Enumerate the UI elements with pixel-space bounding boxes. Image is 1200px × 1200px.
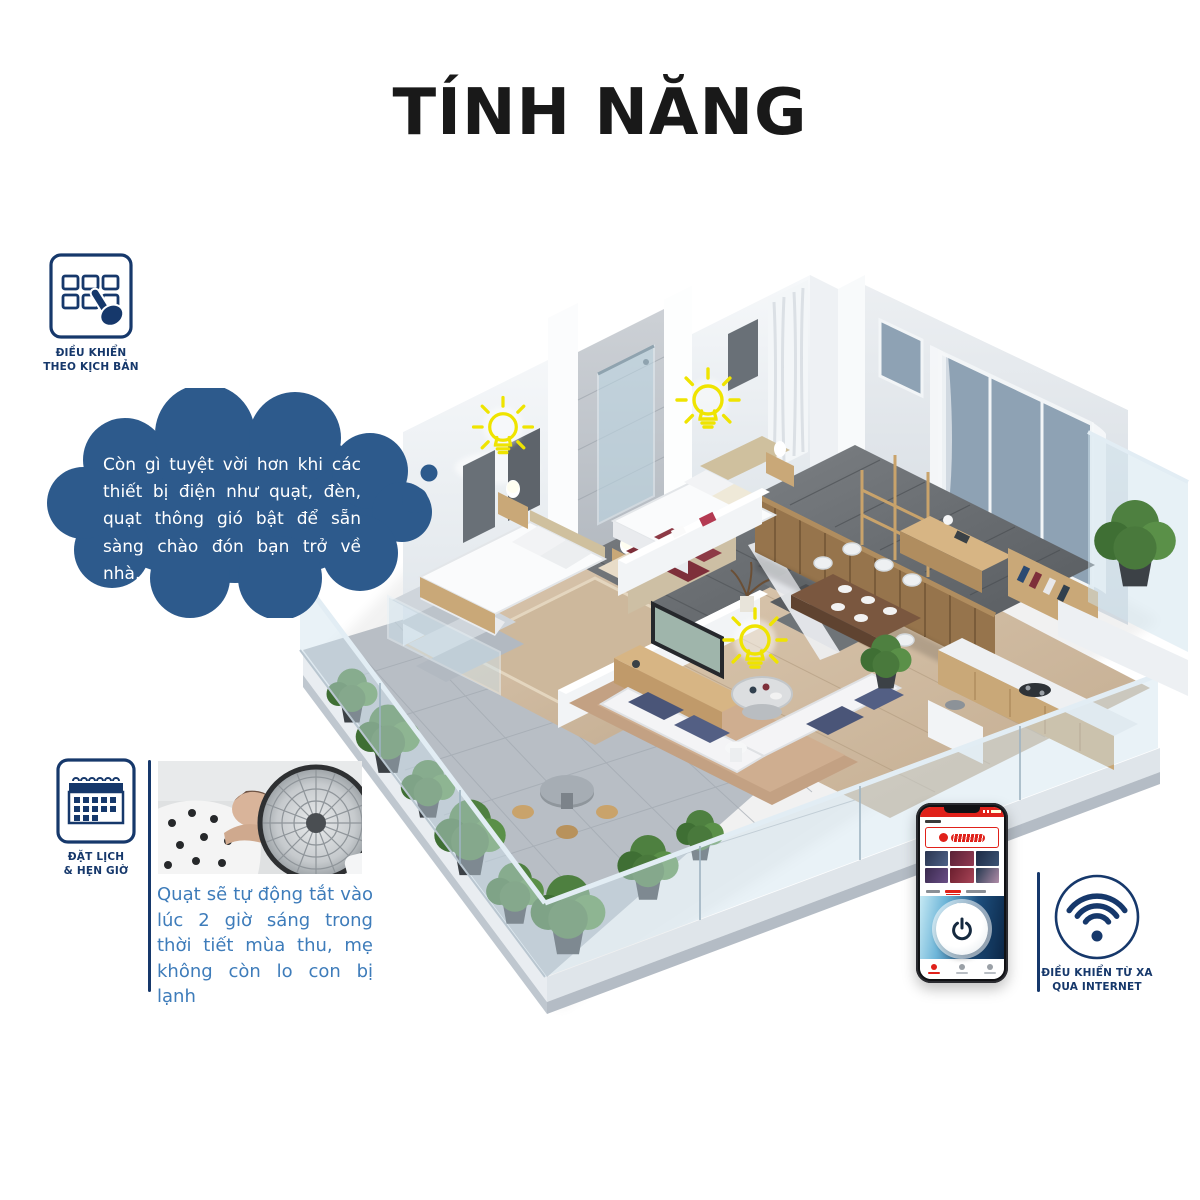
promo-thumb — [950, 851, 973, 866]
brand-banner — [925, 827, 999, 848]
promo-thumb — [976, 851, 999, 866]
app-nav-bar — [920, 959, 1004, 979]
calendar-icon — [55, 757, 137, 845]
devices-icon — [959, 964, 965, 970]
promo-thumb — [925, 868, 948, 883]
smartphone-mockup: on — [916, 803, 1008, 983]
status-icons — [983, 810, 1001, 813]
power-panel: on — [920, 896, 1004, 959]
schedule-label: ĐẶT LỊCH & HẸN GIỜ — [36, 850, 156, 878]
promo-thumb — [976, 868, 999, 883]
poster: TÍNH NĂNG ĐIỀU KHIỂN THEO KỊCH BẢN — [0, 0, 1200, 1200]
thought-text: Còn gì tuyệt vời hơn khi các thiết bị đi… — [103, 452, 361, 588]
home-icon — [931, 964, 937, 970]
app-screen: on — [920, 807, 1004, 979]
gear-icon — [987, 964, 993, 970]
schedule-caption: Quạt sẽ tự động tắt vào lúc 2 giờ sáng t… — [157, 882, 373, 1010]
sleeping-child-fan-photo — [158, 761, 362, 874]
status-bar — [920, 807, 1004, 817]
schedule-divider — [148, 760, 151, 992]
thought-trail-dot — [421, 465, 438, 482]
scenario-label: ĐIỀU KHIỂN THEO KỊCH BẢN — [26, 346, 156, 374]
tab-active — [945, 890, 961, 893]
phone-notch — [944, 807, 980, 813]
power-icon — [949, 916, 975, 942]
nav-item-home — [928, 964, 940, 974]
thought-trail-dot — [402, 487, 428, 513]
tab — [926, 890, 940, 893]
scenario-grid-tap-icon — [48, 252, 134, 342]
remote-label: ĐIỀU KHIỂN TỪ XA QUA INTERNET — [1017, 966, 1177, 994]
nav-item-settings — [984, 964, 996, 974]
power-button — [936, 903, 988, 955]
app-tabs — [920, 886, 1004, 896]
wifi-icon — [1052, 872, 1142, 962]
tab — [966, 890, 986, 893]
app-header — [920, 817, 1004, 827]
page-title: TÍNH NĂNG — [0, 76, 1200, 150]
brand-logo-icon — [939, 833, 948, 842]
promo-thumb — [950, 868, 973, 883]
brand-logo-script — [951, 834, 985, 842]
promo-thumbnails — [920, 848, 1004, 886]
nav-item-devices — [956, 964, 968, 974]
promo-thumb — [925, 851, 948, 866]
